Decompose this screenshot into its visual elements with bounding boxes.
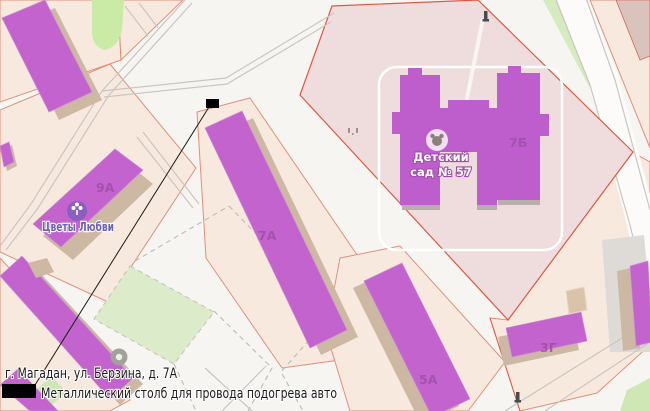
entrance-poi[interactable] xyxy=(111,349,128,366)
building-label-7a: 7А xyxy=(258,228,277,243)
kindergarten-label-line1[interactable]: Детский xyxy=(413,150,468,164)
building-label-3g: 3Г xyxy=(540,340,557,355)
building-label-5a: 5А xyxy=(419,372,438,387)
building-label-7b: 7Б xyxy=(509,135,527,150)
annotation-address: г. Магадан, ул. Берзина, д. 7А xyxy=(5,366,177,382)
kindergarten-label-line2[interactable]: сад № 57 xyxy=(410,165,472,179)
map-canvas[interactable]: 9А 7А 7Б 5А 3Г Цветы Любви Детский сад №… xyxy=(0,0,650,411)
kindergarten-poi[interactable] xyxy=(426,129,448,151)
garage-building xyxy=(566,287,587,314)
building-label-9a: 9А xyxy=(96,180,115,195)
flower-shop-poi[interactable] xyxy=(67,201,87,221)
flower-shop-label[interactable]: Цветы Любви xyxy=(42,220,114,234)
annotation-note: Металлический столб для провода подогрев… xyxy=(41,386,337,402)
annotation-marker[interactable] xyxy=(206,99,219,108)
legend-swatch xyxy=(2,384,36,398)
